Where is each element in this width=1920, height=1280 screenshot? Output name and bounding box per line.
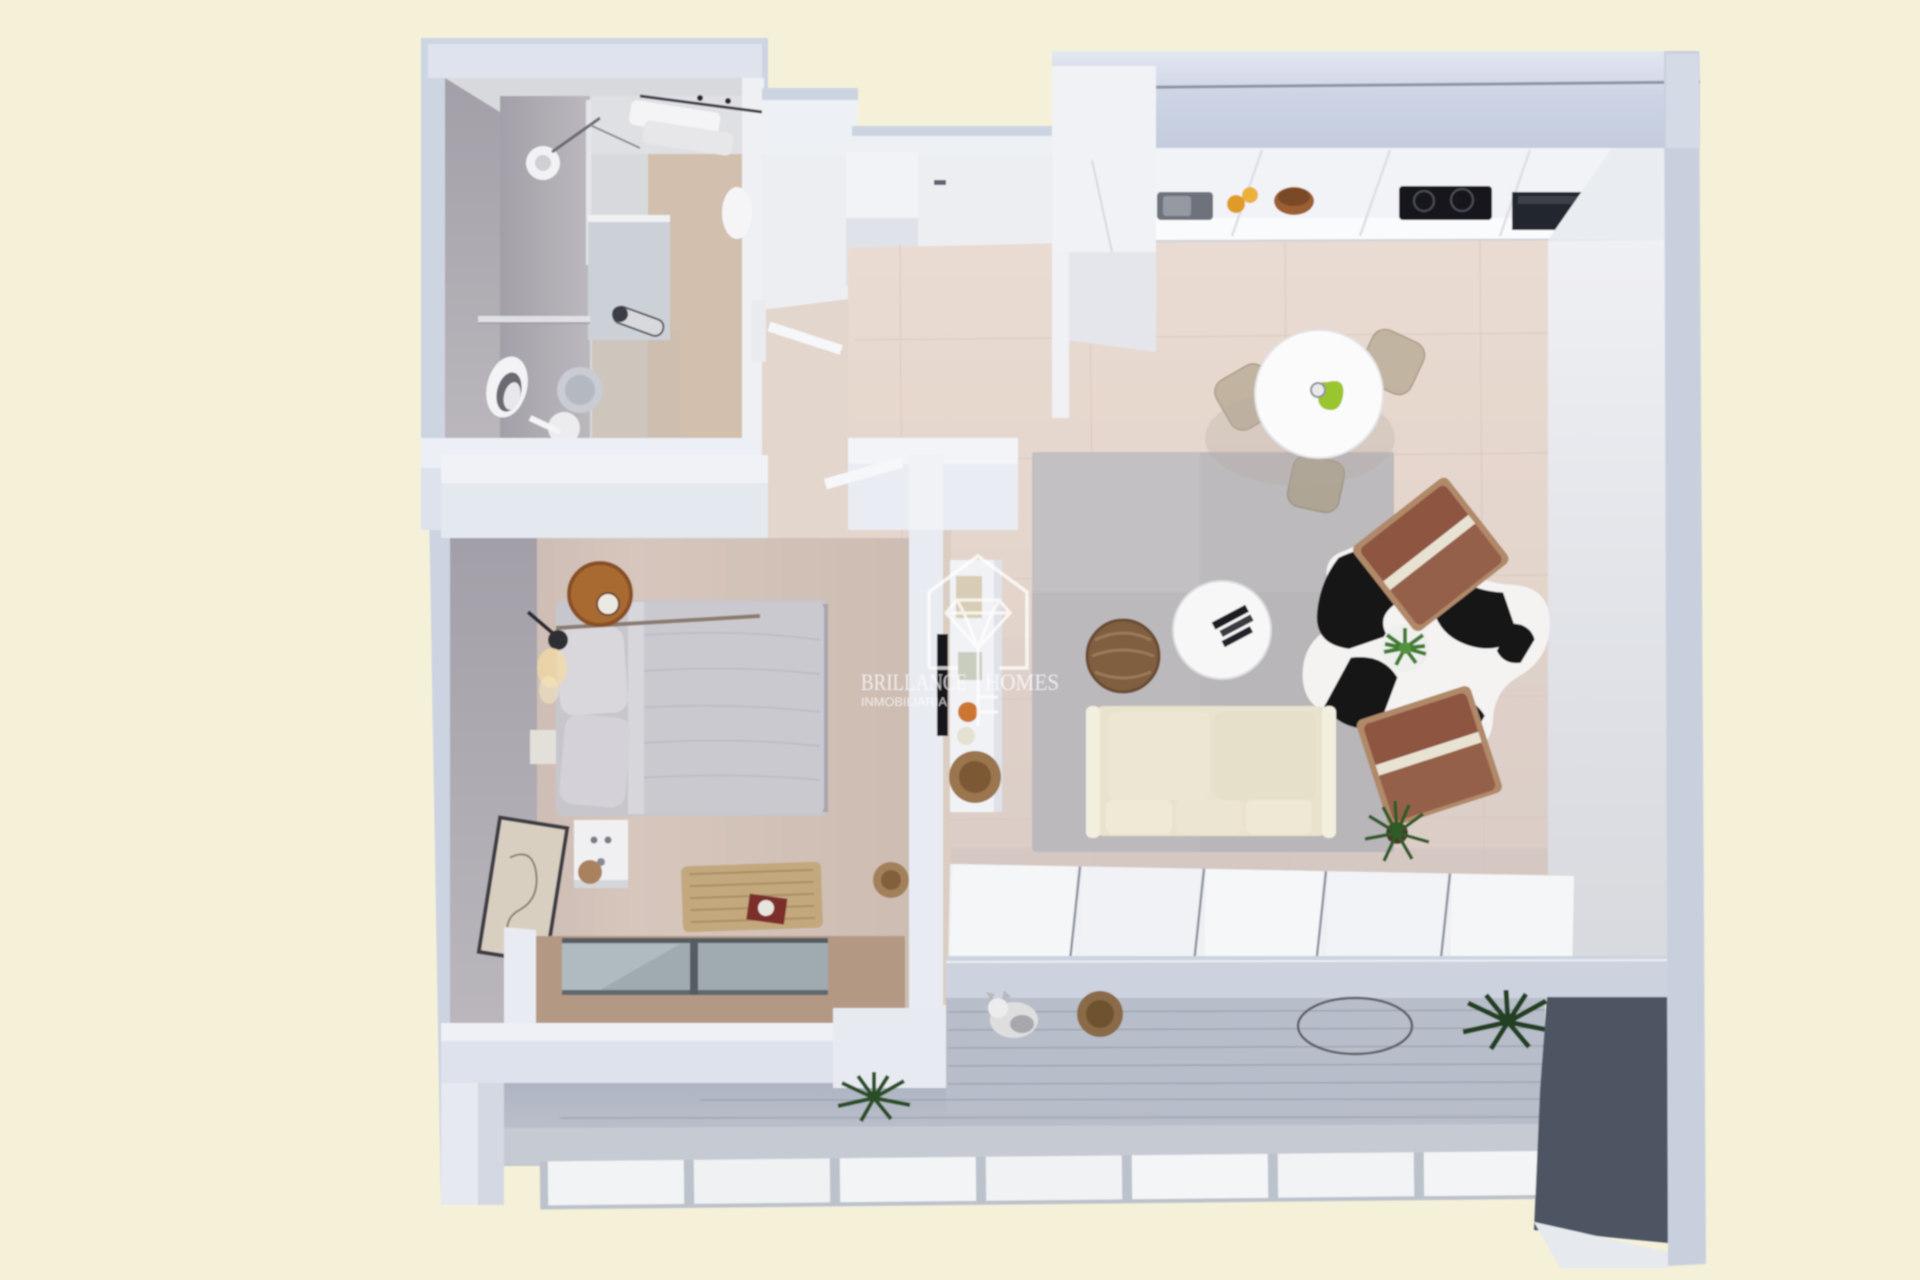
svg-text:HOMES: HOMES: [985, 670, 1059, 695]
svg-text:INMOBILIARIA: INMOBILIARIA: [861, 695, 947, 709]
svg-text:BRILLANCE: BRILLANCE: [861, 670, 967, 695]
